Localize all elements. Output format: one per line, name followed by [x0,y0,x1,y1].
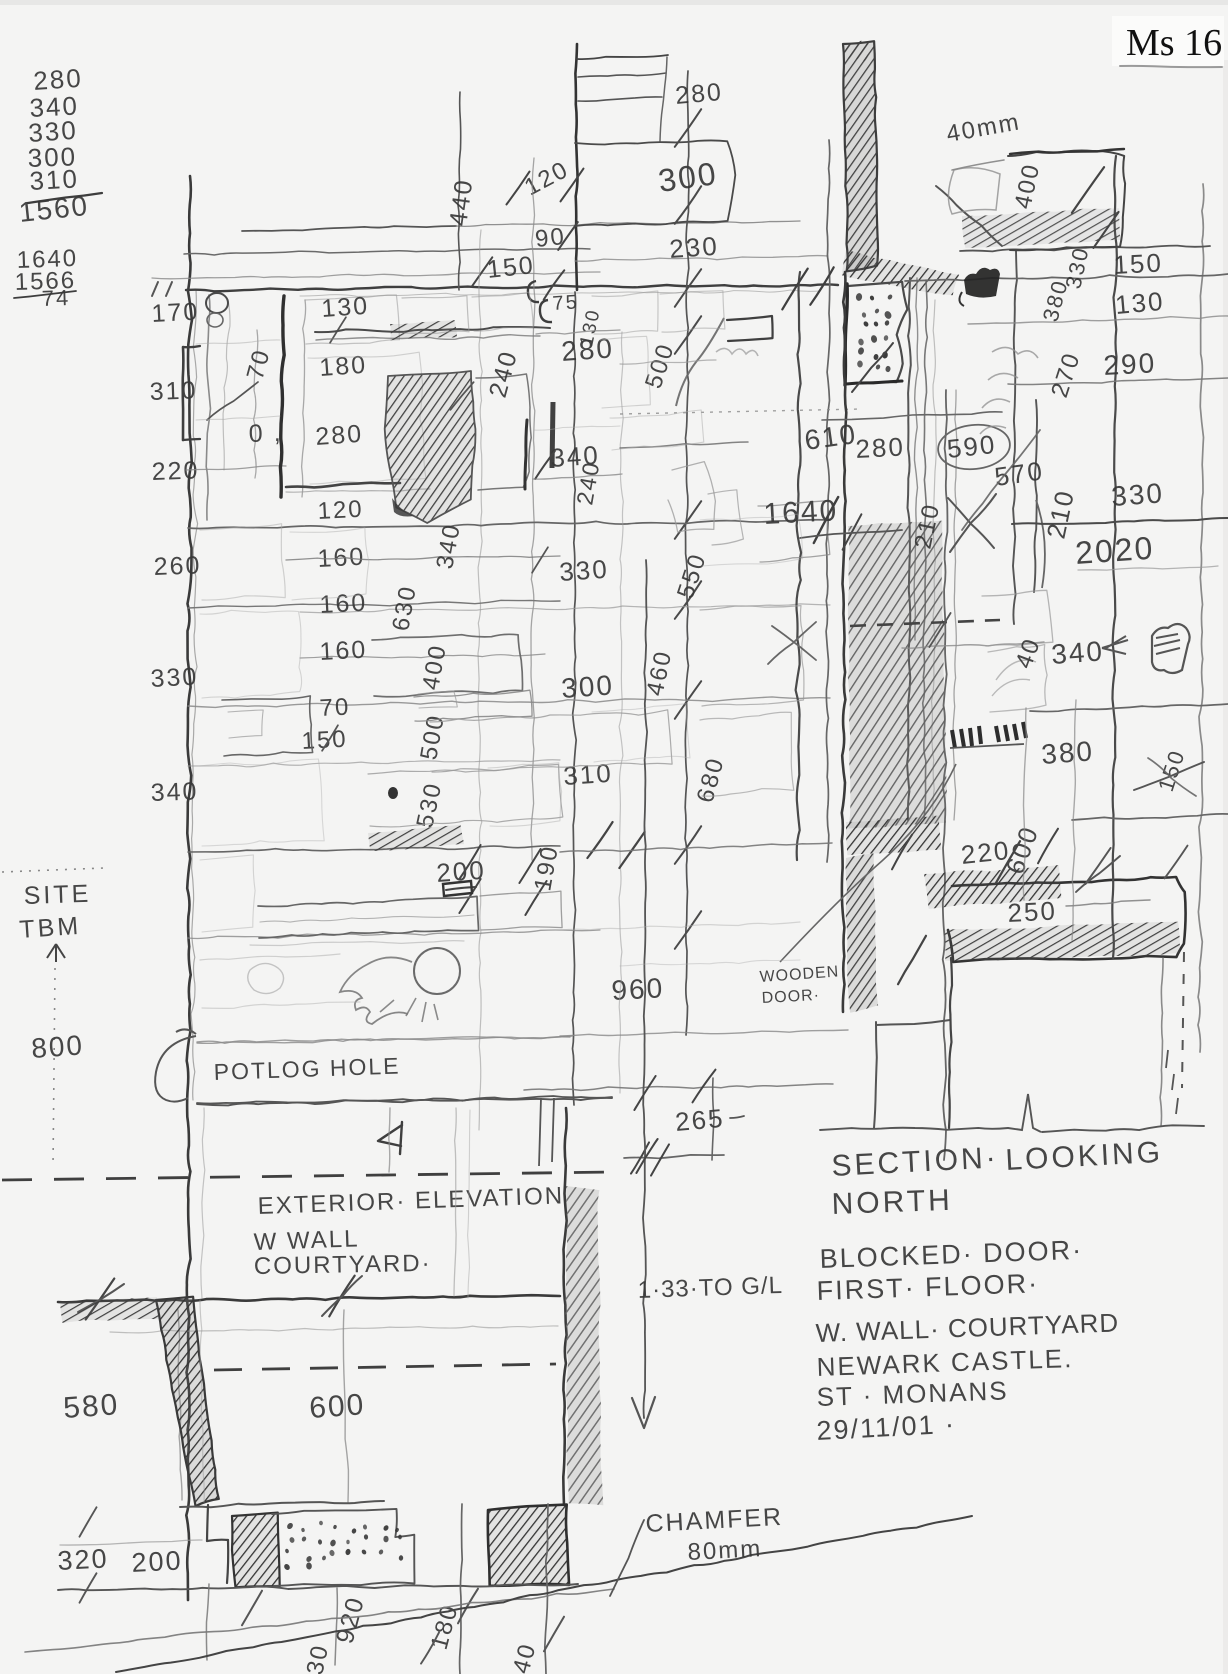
svg-text:380: 380 [1040,735,1095,770]
svg-text:74: 74 [41,285,70,311]
svg-text:590: 590 [945,429,997,464]
svg-text:310: 310 [149,376,198,406]
svg-text:180: 180 [318,351,368,382]
svg-text:90: 90 [534,223,567,253]
svg-text:290: 290 [1103,347,1157,381]
svg-text:NORTH: NORTH [831,1184,953,1221]
svg-text:280: 280 [314,420,364,451]
svg-text:150: 150 [301,726,348,755]
svg-text:2020: 2020 [1074,530,1156,571]
svg-text:300: 300 [560,669,615,704]
svg-text:170: 170 [151,298,200,328]
svg-text:600: 600 [308,1388,366,1425]
svg-text:TBM: TBM [18,912,82,944]
svg-text:COURTYARD·: COURTYARD· [254,1250,432,1280]
svg-text:330: 330 [558,554,609,587]
svg-text:230: 230 [668,231,719,264]
svg-text:200: 200 [131,1545,184,1578]
svg-text:340: 340 [1050,635,1105,670]
svg-text:265: 265 [674,1103,726,1137]
svg-text:320: 320 [57,1543,110,1576]
svg-text:DOOR·: DOOR· [761,987,820,1007]
svg-text:0 ,: 0 , [248,419,283,448]
svg-text:580: 580 [62,1388,120,1425]
svg-text:75: 75 [552,291,580,315]
svg-text:30: 30 [301,1642,334,1674]
svg-text:340: 340 [150,777,199,807]
svg-text:260: 260 [153,551,202,581]
svg-text:280: 280 [855,431,906,464]
svg-text:70: 70 [319,693,351,722]
svg-text:120: 120 [317,496,364,525]
svg-text:1640: 1640 [763,494,839,531]
svg-text:330: 330 [1110,477,1165,512]
svg-text:150: 150 [1113,247,1164,280]
svg-text:250: 250 [1007,895,1058,928]
svg-text:310: 310 [562,758,613,791]
svg-text:80mm: 80mm [687,1535,763,1566]
svg-text:130: 130 [1114,286,1166,320]
svg-text:160: 160 [319,636,368,666]
svg-text:1·33·TO G/L: 1·33·TO G/L [637,1272,783,1304]
svg-text:160: 160 [319,589,368,619]
svg-text:220: 220 [151,456,200,486]
svg-text:800: 800 [30,1029,85,1064]
svg-text:SITE: SITE [23,880,92,910]
svg-text:150: 150 [486,251,536,284]
svg-text:280: 280 [674,78,724,110]
svg-text:330: 330 [150,663,199,693]
svg-text:Ms 16: Ms 16 [1126,22,1222,64]
svg-text:280: 280 [560,332,615,367]
